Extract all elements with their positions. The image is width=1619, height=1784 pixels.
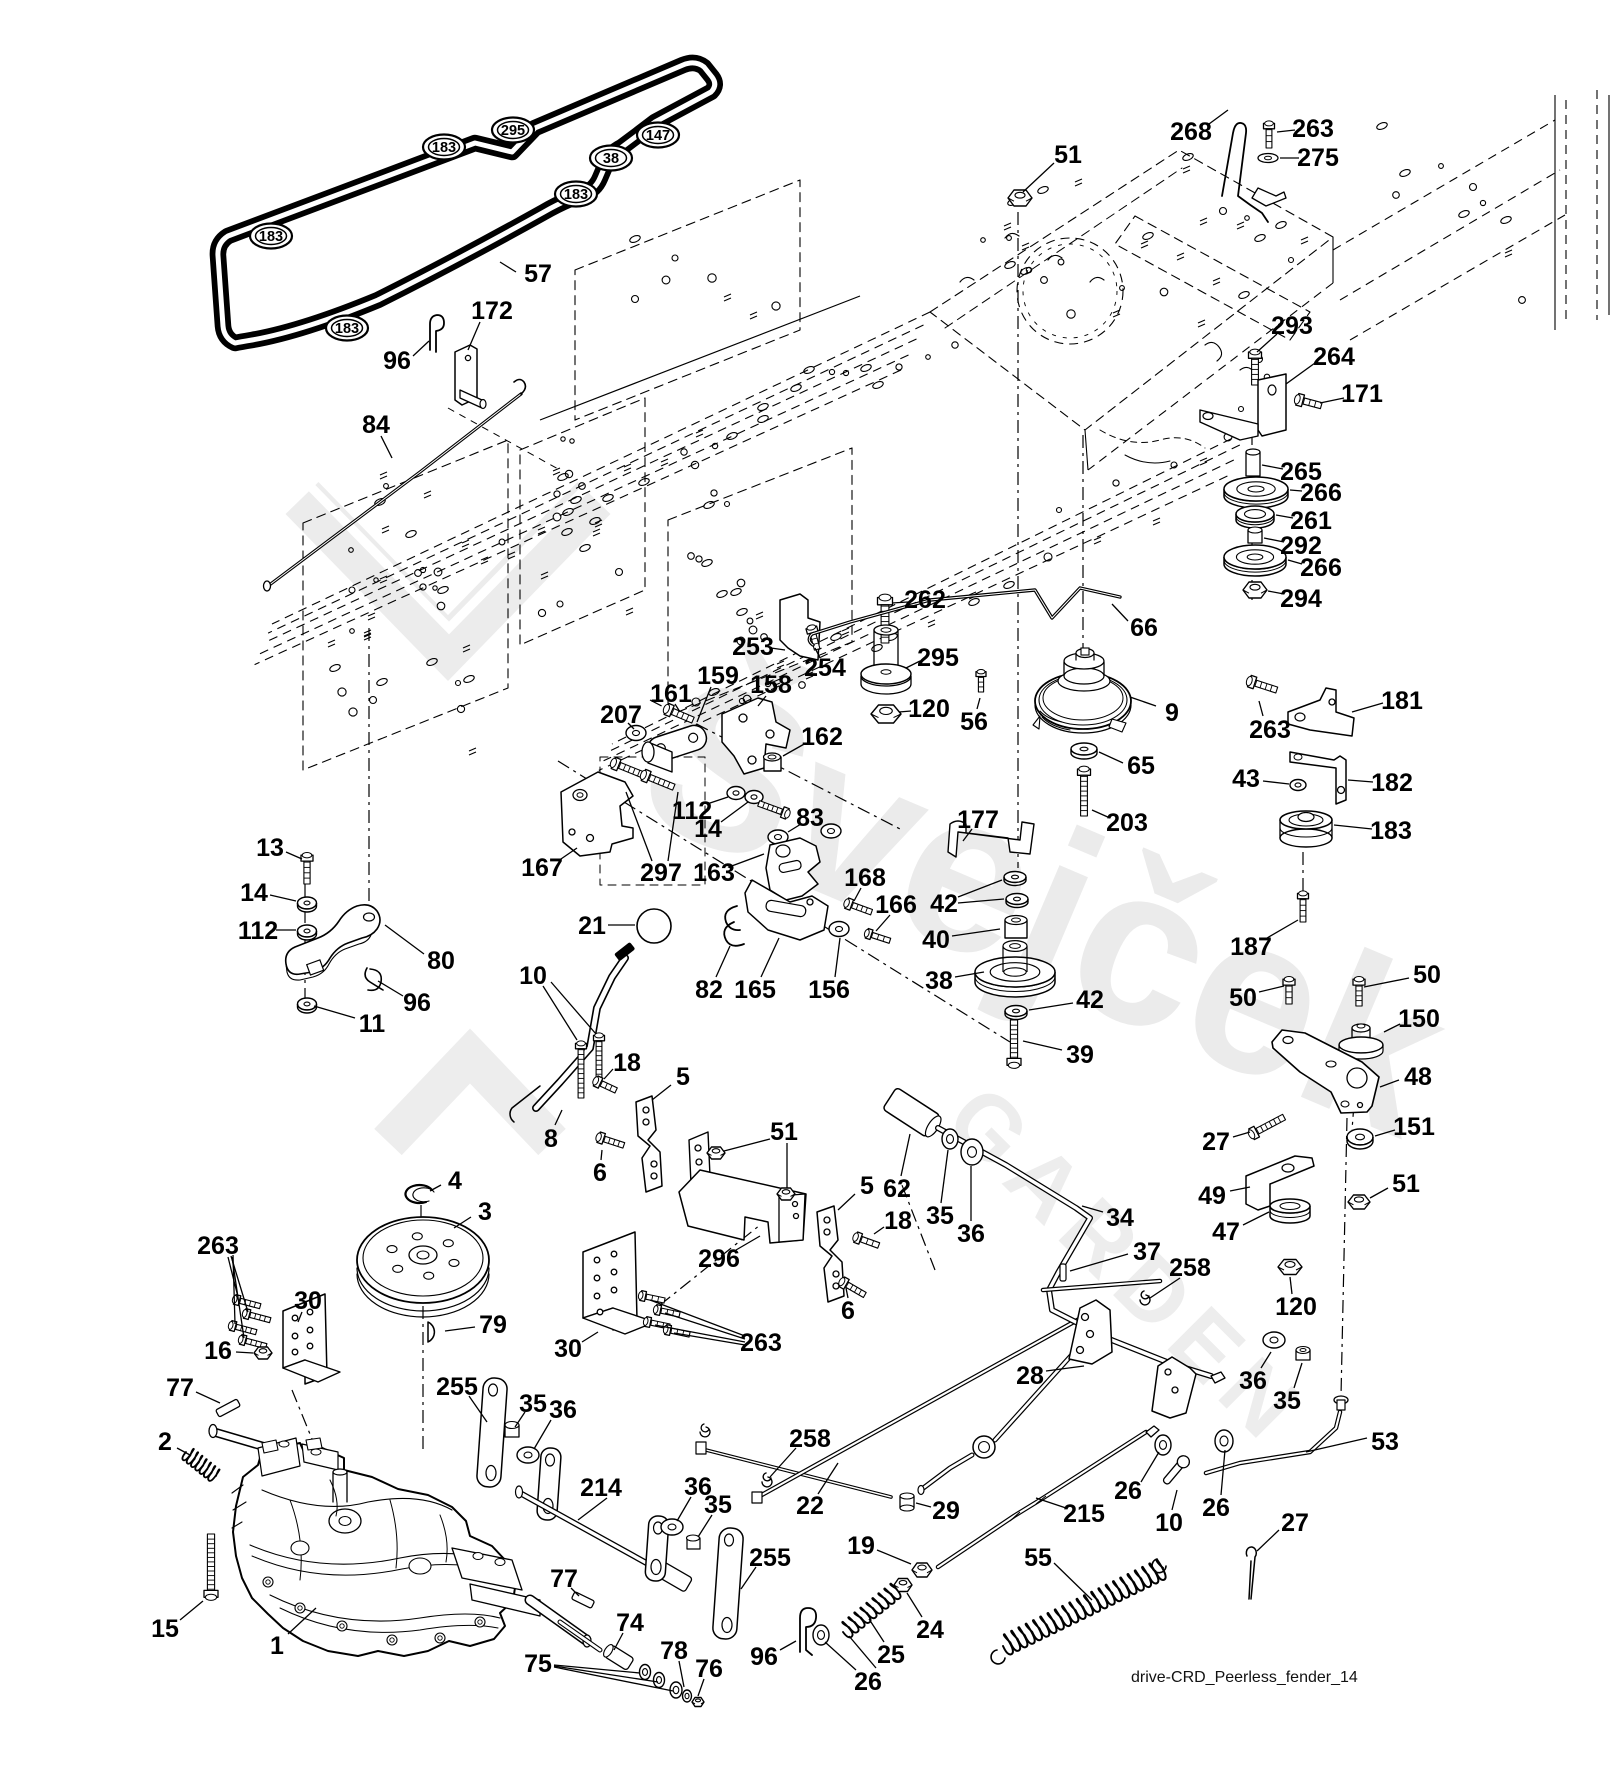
svg-text:183: 183 — [259, 229, 283, 245]
svg-text:295: 295 — [917, 644, 959, 672]
svg-text:65: 65 — [1127, 752, 1155, 780]
svg-text:50: 50 — [1413, 961, 1441, 989]
svg-text:55: 55 — [1024, 1544, 1052, 1572]
svg-text:9: 9 — [1165, 699, 1179, 727]
svg-text:112: 112 — [238, 917, 278, 945]
svg-text:214: 214 — [580, 1474, 622, 1502]
svg-text:30: 30 — [294, 1287, 322, 1315]
svg-text:2: 2 — [158, 1428, 172, 1456]
svg-text:51: 51 — [770, 1118, 798, 1146]
svg-text:120: 120 — [1275, 1293, 1317, 1321]
svg-text:75: 75 — [524, 1650, 552, 1678]
svg-text:27: 27 — [1281, 1509, 1309, 1537]
svg-text:156: 156 — [808, 976, 850, 1004]
svg-text:35: 35 — [704, 1491, 732, 1519]
svg-text:266: 266 — [1300, 554, 1342, 582]
svg-text:10: 10 — [1155, 1509, 1183, 1537]
svg-text:21: 21 — [578, 912, 606, 940]
svg-text:255: 255 — [749, 1544, 791, 1572]
svg-text:203: 203 — [1106, 809, 1148, 837]
svg-text:42: 42 — [1076, 986, 1104, 1014]
svg-text:258: 258 — [789, 1425, 831, 1453]
svg-text:78: 78 — [660, 1637, 688, 1665]
svg-text:30: 30 — [554, 1335, 582, 1363]
svg-text:147: 147 — [646, 128, 670, 144]
svg-text:49: 49 — [1198, 1182, 1226, 1210]
svg-text:51: 51 — [1054, 141, 1082, 169]
svg-text:187: 187 — [1230, 933, 1272, 961]
svg-text:53: 53 — [1371, 1428, 1399, 1456]
svg-text:183: 183 — [564, 187, 588, 203]
svg-text:16: 16 — [204, 1337, 232, 1365]
svg-text:36: 36 — [549, 1396, 577, 1424]
svg-text:34: 34 — [1106, 1204, 1134, 1232]
svg-text:5: 5 — [676, 1063, 690, 1091]
svg-text:183: 183 — [1370, 817, 1412, 845]
svg-text:56: 56 — [960, 708, 988, 736]
svg-text:255: 255 — [436, 1373, 478, 1401]
svg-text:11: 11 — [359, 1010, 386, 1038]
svg-text:167: 167 — [521, 854, 563, 882]
svg-text:35: 35 — [519, 1390, 547, 1418]
svg-text:82: 82 — [695, 976, 723, 1004]
svg-text:96: 96 — [403, 989, 431, 1017]
svg-text:297: 297 — [640, 859, 682, 887]
svg-text:177: 177 — [957, 806, 999, 834]
svg-text:258: 258 — [1169, 1254, 1211, 1282]
svg-text:150: 150 — [1398, 1005, 1440, 1033]
svg-text:253: 253 — [732, 633, 774, 661]
svg-text:79: 79 — [479, 1311, 507, 1339]
svg-text:268: 268 — [1170, 118, 1212, 146]
svg-text:151: 151 — [1393, 1113, 1435, 1141]
svg-text:275: 275 — [1297, 144, 1339, 172]
svg-text:83: 83 — [796, 804, 824, 832]
svg-text:14: 14 — [694, 815, 722, 843]
svg-text:62: 62 — [883, 1175, 911, 1203]
svg-text:25: 25 — [877, 1641, 905, 1669]
svg-text:29: 29 — [932, 1497, 960, 1525]
svg-text:172: 172 — [471, 297, 513, 325]
svg-text:264: 264 — [1313, 343, 1355, 371]
svg-text:96: 96 — [383, 347, 411, 375]
svg-text:39: 39 — [1066, 1041, 1094, 1069]
svg-text:5: 5 — [860, 1172, 874, 1200]
svg-text:48: 48 — [1404, 1063, 1432, 1091]
svg-text:254: 254 — [804, 654, 846, 682]
svg-text:77: 77 — [550, 1565, 578, 1593]
svg-text:295: 295 — [501, 123, 525, 139]
svg-text:183: 183 — [335, 321, 359, 337]
svg-text:84: 84 — [362, 411, 390, 439]
svg-text:28: 28 — [1016, 1362, 1044, 1390]
svg-text:1: 1 — [270, 1632, 284, 1660]
svg-text:37: 37 — [1133, 1238, 1161, 1266]
svg-text:38: 38 — [925, 967, 953, 995]
svg-text:26: 26 — [854, 1668, 882, 1696]
svg-text:50: 50 — [1229, 984, 1257, 1012]
svg-text:6: 6 — [841, 1297, 855, 1325]
svg-text:43: 43 — [1232, 765, 1260, 793]
svg-text:18: 18 — [613, 1049, 641, 1077]
svg-text:263: 263 — [740, 1329, 782, 1357]
svg-text:3: 3 — [478, 1198, 492, 1226]
svg-text:171: 171 — [1341, 380, 1383, 408]
svg-text:4: 4 — [448, 1167, 462, 1195]
svg-text:6: 6 — [593, 1159, 607, 1187]
svg-text:182: 182 — [1371, 769, 1413, 797]
svg-text:35: 35 — [1273, 1387, 1301, 1415]
svg-text:168: 168 — [844, 864, 886, 892]
svg-text:76: 76 — [695, 1655, 723, 1683]
svg-text:22: 22 — [796, 1492, 824, 1520]
svg-text:47: 47 — [1212, 1218, 1240, 1246]
svg-text:42: 42 — [930, 890, 958, 918]
svg-text:261: 261 — [1290, 507, 1332, 535]
svg-text:27: 27 — [1202, 1128, 1230, 1156]
svg-text:36: 36 — [1239, 1367, 1267, 1395]
svg-text:96: 96 — [750, 1643, 778, 1671]
svg-text:36: 36 — [957, 1220, 985, 1248]
svg-text:162: 162 — [801, 723, 843, 751]
svg-text:66: 66 — [1130, 614, 1158, 642]
svg-text:293: 293 — [1271, 312, 1313, 340]
svg-text:15: 15 — [151, 1615, 179, 1643]
svg-text:158: 158 — [750, 671, 792, 699]
svg-text:262: 262 — [904, 586, 946, 614]
svg-text:drive-CRD_Peerless_fender_14: drive-CRD_Peerless_fender_14 — [1131, 1669, 1358, 1686]
svg-text:51: 51 — [1392, 1170, 1420, 1198]
svg-text:38: 38 — [603, 151, 619, 167]
svg-text:74: 74 — [616, 1609, 644, 1637]
svg-text:26: 26 — [1202, 1494, 1230, 1522]
svg-text:13: 13 — [256, 834, 284, 862]
svg-text:263: 263 — [1249, 716, 1291, 744]
svg-text:19: 19 — [847, 1532, 875, 1560]
svg-text:26: 26 — [1114, 1477, 1142, 1505]
svg-text:263: 263 — [197, 1232, 239, 1260]
svg-text:120: 120 — [908, 695, 950, 723]
svg-text:159: 159 — [697, 662, 739, 690]
svg-text:18: 18 — [884, 1207, 912, 1235]
svg-text:263: 263 — [1292, 115, 1334, 143]
svg-text:35: 35 — [926, 1202, 954, 1230]
svg-text:207: 207 — [600, 701, 642, 729]
svg-text:10: 10 — [519, 962, 547, 990]
svg-text:77: 77 — [166, 1374, 194, 1402]
svg-text:57: 57 — [524, 260, 552, 288]
svg-text:161: 161 — [650, 680, 692, 708]
svg-text:40: 40 — [922, 926, 950, 954]
svg-text:215: 215 — [1063, 1500, 1105, 1528]
svg-text:294: 294 — [1280, 585, 1322, 613]
svg-text:266: 266 — [1300, 479, 1342, 507]
svg-text:24: 24 — [916, 1616, 944, 1644]
svg-text:296: 296 — [698, 1245, 740, 1273]
svg-text:163: 163 — [693, 859, 735, 887]
svg-text:8: 8 — [544, 1125, 558, 1153]
svg-text:80: 80 — [427, 947, 455, 975]
svg-text:166: 166 — [875, 891, 917, 919]
svg-text:14: 14 — [240, 879, 268, 907]
svg-text:181: 181 — [1381, 687, 1423, 715]
svg-text:183: 183 — [432, 140, 456, 156]
svg-text:165: 165 — [734, 976, 776, 1004]
